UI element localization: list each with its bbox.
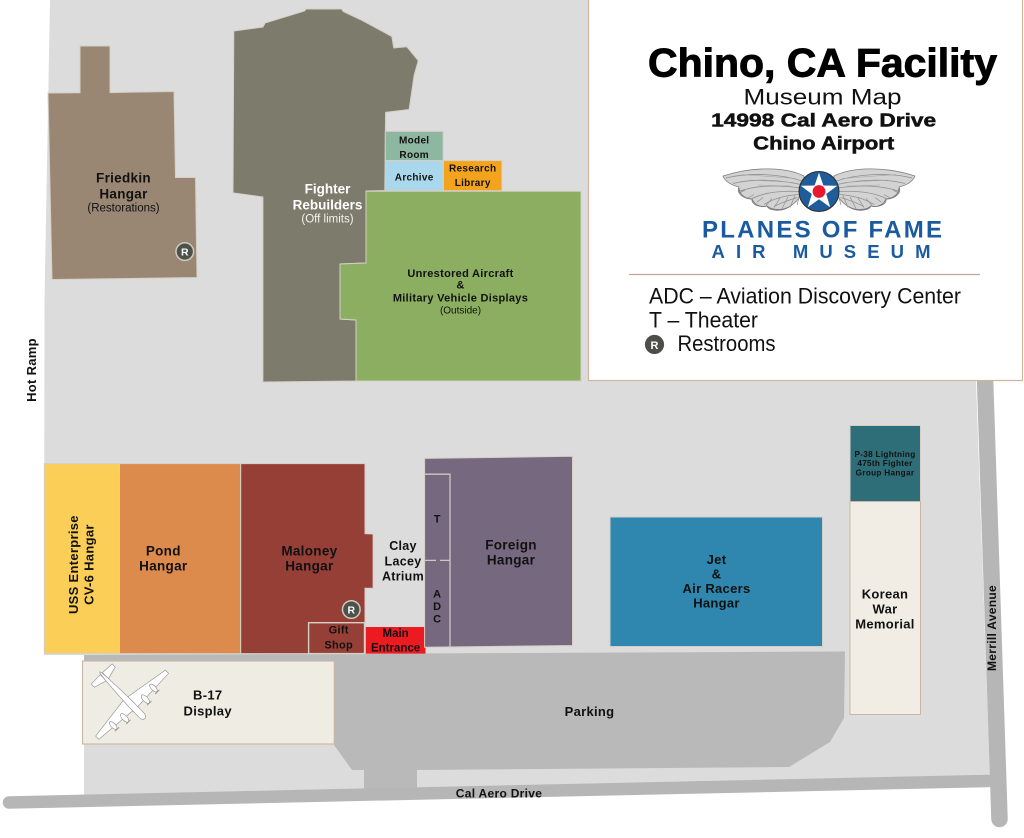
svg-text:Hangar: Hangar	[285, 559, 334, 574]
svg-text:Group Hangar: Group Hangar	[856, 468, 915, 477]
svg-text:Korean: Korean	[862, 587, 909, 602]
svg-text:Chino, CA Facility: Chino, CA Facility	[648, 41, 997, 85]
svg-text:Entrance: Entrance	[371, 642, 420, 654]
svg-text:Chino Airport: Chino Airport	[753, 134, 894, 154]
svg-text:Library: Library	[455, 178, 491, 189]
svg-text:Foreign: Foreign	[485, 538, 537, 553]
svg-text:Atrium: Atrium	[382, 569, 424, 583]
svg-text:Parking: Parking	[565, 704, 615, 719]
svg-text:R: R	[181, 247, 189, 259]
svg-text:&: &	[456, 280, 464, 292]
svg-text:Cal Aero Drive: Cal Aero Drive	[456, 787, 542, 801]
svg-text:&: &	[712, 567, 722, 582]
svg-text:Display: Display	[184, 704, 233, 719]
svg-text:Shop: Shop	[324, 640, 353, 652]
svg-text:(Restorations): (Restorations)	[87, 203, 159, 215]
svg-text:Main: Main	[382, 628, 408, 640]
svg-text:Lacey: Lacey	[385, 554, 422, 568]
svg-text:T: T	[434, 514, 441, 526]
svg-text:Model: Model	[399, 136, 429, 147]
svg-text:A: A	[433, 589, 441, 601]
svg-text:R: R	[651, 340, 659, 352]
svg-text:Hot Ramp: Hot Ramp	[24, 338, 39, 402]
svg-text:Hangar: Hangar	[693, 596, 740, 611]
svg-text:P-38 Lightning: P-38 Lightning	[854, 450, 915, 459]
svg-text:Military Vehicle Displays: Military Vehicle Displays	[393, 293, 528, 305]
svg-text:R: R	[348, 605, 356, 617]
svg-text:Fighter: Fighter	[305, 182, 351, 197]
svg-text:CV-6 Hangar: CV-6 Hangar	[81, 524, 96, 605]
svg-text:Air Racers: Air Racers	[682, 581, 750, 596]
svg-text:ADC – Aviation Discovery Cente: ADC – Aviation Discovery Center	[649, 283, 961, 308]
svg-text:Clay: Clay	[389, 539, 417, 553]
svg-text:D: D	[433, 601, 441, 613]
svg-text:War: War	[873, 602, 898, 617]
svg-text:Hangar: Hangar	[139, 559, 188, 574]
svg-text:475th Fighter: 475th Fighter	[857, 459, 913, 468]
svg-text:Hangar: Hangar	[487, 553, 536, 568]
svg-text:USS Enterprise: USS Enterprise	[66, 515, 81, 614]
svg-text:Restrooms: Restrooms	[678, 331, 776, 356]
svg-text:Room: Room	[399, 150, 429, 161]
svg-text:Memorial: Memorial	[855, 617, 914, 632]
svg-text:PLANES OF FAME: PLANES OF FAME	[702, 217, 942, 244]
svg-text:(Off limits): (Off limits)	[301, 214, 353, 226]
svg-text:Museum Map: Museum Map	[744, 85, 902, 110]
svg-text:Gift: Gift	[329, 625, 349, 637]
svg-text:Maloney: Maloney	[281, 544, 337, 559]
svg-text:Pond: Pond	[146, 544, 181, 559]
svg-text:Friedkin: Friedkin	[96, 171, 151, 186]
svg-text:Unrestored Aircraft: Unrestored Aircraft	[407, 268, 513, 280]
svg-text:Merrill Avenue: Merrill Avenue	[985, 585, 999, 671]
svg-text:T – Theater: T – Theater	[649, 308, 758, 333]
svg-text:C: C	[433, 614, 441, 626]
svg-text:Hangar: Hangar	[99, 187, 148, 202]
svg-text:14998 Cal Aero Drive: 14998 Cal Aero Drive	[711, 111, 936, 131]
svg-text:Rebuilders: Rebuilders	[293, 198, 363, 213]
svg-text:(Outside): (Outside)	[440, 306, 481, 317]
svg-text:B-17: B-17	[193, 688, 222, 703]
svg-text:Jet: Jet	[707, 552, 727, 567]
svg-text:Archive: Archive	[395, 172, 434, 183]
svg-text:Research: Research	[449, 164, 496, 175]
